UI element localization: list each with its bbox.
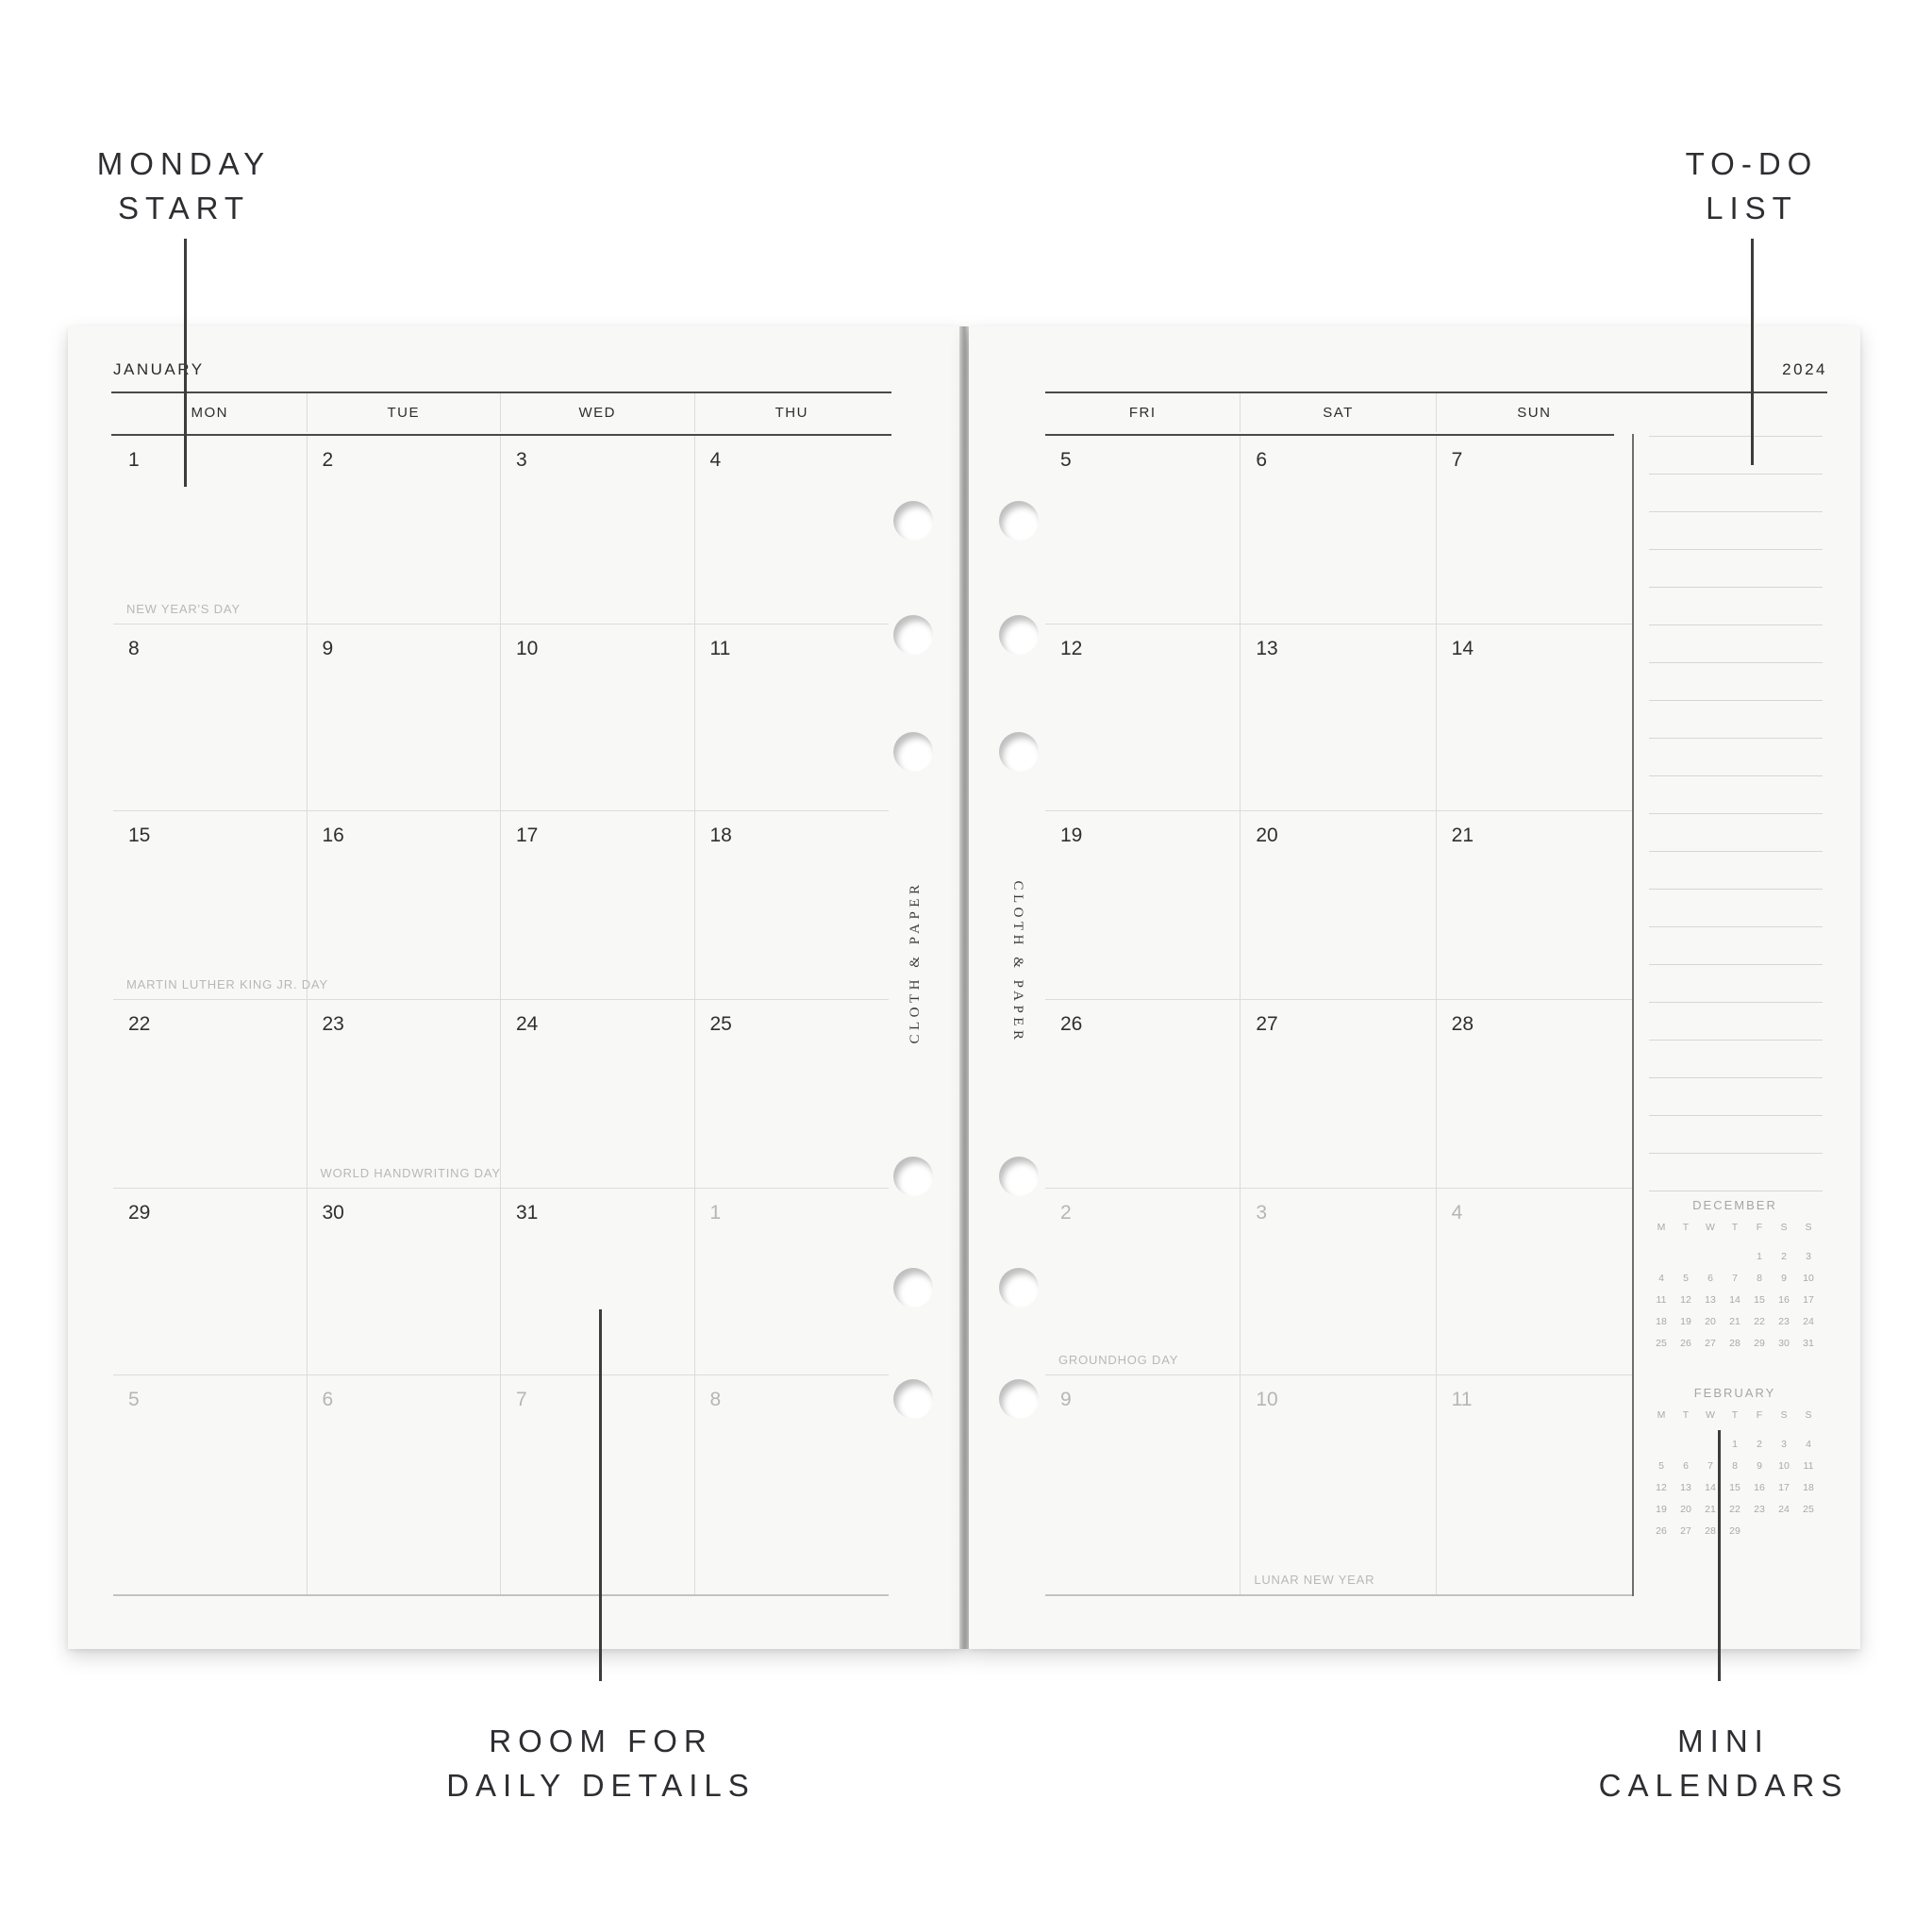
mini-calendar-date: 20 — [1698, 1311, 1723, 1333]
mini-calendar-date: 10 — [1796, 1268, 1821, 1290]
mini-calendar-date — [1772, 1521, 1796, 1542]
mini-calendar-date — [1649, 1434, 1674, 1456]
mini-calendar-date: 21 — [1723, 1311, 1747, 1333]
day-cell: 9 — [1045, 1375, 1241, 1594]
day-cell: 4 — [695, 436, 890, 625]
todo-ruled-line — [1649, 851, 1823, 852]
mini-calendar-date: 22 — [1747, 1311, 1772, 1333]
day-cell: 30 — [308, 1189, 502, 1375]
planner-product-image: MONDAY START TO-DO LIST ROOM FOR DAILY D… — [0, 0, 1932, 1932]
binder-hole — [893, 1157, 933, 1196]
day-cell: 22 — [113, 1000, 308, 1189]
month-grid-right: 5671213141920212627282GROUNDHOG DAY34910… — [1045, 436, 1632, 1594]
mini-calendar-date: 17 — [1772, 1477, 1796, 1499]
binder-hole — [999, 1157, 1039, 1196]
callout-todo-list-line1: TO-DO — [1610, 142, 1893, 186]
date-number: 2 — [323, 449, 334, 472]
date-number: 16 — [323, 824, 344, 847]
date-number: 11 — [1452, 1389, 1473, 1411]
day-cell: 31 — [501, 1189, 695, 1375]
mini-calendar-date: 15 — [1723, 1477, 1747, 1499]
day-cell: 2GROUNDHOG DAY — [1045, 1189, 1241, 1375]
grid-bottom-rule-right — [1045, 1594, 1632, 1596]
binder-hole — [893, 732, 933, 772]
mini-calendar-date: 12 — [1674, 1290, 1698, 1311]
date-number: 7 — [1452, 449, 1463, 472]
date-number: 27 — [1256, 1013, 1277, 1036]
mini-calendar-date: 1 — [1747, 1246, 1772, 1268]
mini-calendar-date — [1796, 1521, 1821, 1542]
mini-calendar-date: 13 — [1698, 1290, 1723, 1311]
date-number: 20 — [1256, 824, 1277, 847]
date-number: 3 — [1256, 1202, 1267, 1224]
mini-calendar-date: 13 — [1674, 1477, 1698, 1499]
todo-column-divider — [1632, 434, 1634, 1596]
todo-ruled-line — [1649, 775, 1823, 776]
mini-calendar-title: DECEMBER — [1649, 1194, 1821, 1217]
day-cell: 10 — [501, 625, 695, 811]
binder-hole — [999, 1379, 1039, 1419]
mini-calendar-date: 22 — [1723, 1499, 1747, 1521]
date-number: 4 — [710, 449, 722, 472]
grid-bottom-rule-left — [113, 1594, 889, 1596]
mini-calendar-day-letter: S — [1796, 1217, 1821, 1238]
date-number: 6 — [1256, 449, 1267, 472]
mini-calendar-date: 4 — [1796, 1434, 1821, 1456]
callout-pointer-mini-calendars — [1718, 1430, 1721, 1681]
todo-ruled-line — [1649, 700, 1823, 701]
date-number: 15 — [128, 824, 150, 847]
mini-calendar-day-letter: T — [1674, 1405, 1698, 1425]
day-cell: 29 — [113, 1189, 308, 1375]
mini-calendar-day-letter: M — [1649, 1405, 1674, 1425]
callout-mini-calendars: MINI CALENDARS — [1582, 1719, 1865, 1807]
date-number: 3 — [516, 449, 527, 472]
date-number: 6 — [323, 1389, 334, 1411]
day-cell: 11 — [695, 625, 890, 811]
day-cell: 25 — [695, 1000, 890, 1189]
mini-calendar-date: 16 — [1747, 1477, 1772, 1499]
mini-calendar-date: 30 — [1772, 1333, 1796, 1355]
mini-calendar-date: 5 — [1649, 1456, 1674, 1477]
day-cell: 26 — [1045, 1000, 1241, 1189]
mini-calendar-date: 18 — [1796, 1477, 1821, 1499]
callout-pointer-todo-list — [1751, 239, 1754, 465]
mini-calendar-date: 27 — [1674, 1521, 1698, 1542]
mini-calendar-date: 27 — [1698, 1333, 1723, 1355]
todo-ruled-line — [1649, 436, 1823, 437]
mini-calendar-date — [1649, 1246, 1674, 1268]
mini-calendar-date: 3 — [1796, 1246, 1821, 1268]
day-cell: 21 — [1437, 811, 1632, 1000]
date-number: 10 — [1256, 1389, 1277, 1411]
mini-calendar-date: 9 — [1772, 1268, 1796, 1290]
day-cell: 23WORLD HANDWRITING DAY — [308, 1000, 502, 1189]
month-grid-left: 1NEW YEAR'S DAY23489101115MARTIN LUTHER … — [113, 436, 889, 1594]
day-cell: 1 — [695, 1189, 890, 1375]
day-cell: 7 — [501, 1375, 695, 1594]
mini-calendar-date: 14 — [1723, 1290, 1747, 1311]
date-number: 13 — [1256, 638, 1277, 660]
binder-hole — [893, 1379, 933, 1419]
callout-mini-line1: MINI — [1582, 1719, 1865, 1763]
callout-todo-list-line2: LIST — [1610, 186, 1893, 230]
mini-calendar-date: 6 — [1674, 1456, 1698, 1477]
day-cell: 3 — [501, 436, 695, 625]
callout-room-for-daily-details: ROOM FOR DAILY DETAILS — [412, 1719, 790, 1807]
mini-calendar-date: 23 — [1747, 1499, 1772, 1521]
mini-calendar-day-letter: F — [1747, 1405, 1772, 1425]
callout-room-line1: ROOM FOR — [412, 1719, 790, 1763]
day-cell: 28 — [1437, 1000, 1632, 1189]
date-number: 5 — [128, 1389, 140, 1411]
mini-calendar-date: 16 — [1772, 1290, 1796, 1311]
todo-ruled-line — [1649, 1077, 1823, 1078]
day-cell: 2 — [308, 436, 502, 625]
date-number: 10 — [516, 638, 538, 660]
day-cell: 10LUNAR NEW YEAR — [1241, 1375, 1436, 1594]
day-cell: 5 — [113, 1375, 308, 1594]
mini-calendar-date: 15 — [1747, 1290, 1772, 1311]
todo-ruled-line — [1649, 474, 1823, 475]
mini-calendar-date: 20 — [1674, 1499, 1698, 1521]
page-binding-gap — [959, 326, 969, 1649]
date-number: 24 — [516, 1013, 538, 1036]
binder-hole — [893, 615, 933, 655]
date-number: 26 — [1060, 1013, 1082, 1036]
mini-calendar-date: 25 — [1649, 1333, 1674, 1355]
holiday-label: WORLD HANDWRITING DAY — [321, 1166, 501, 1180]
date-number: 25 — [710, 1013, 732, 1036]
mini-calendar-date — [1747, 1521, 1772, 1542]
mini-calendar-date: 28 — [1723, 1333, 1747, 1355]
mini-calendar-day-letter: S — [1772, 1217, 1796, 1238]
day-cell: 1NEW YEAR'S DAY — [113, 436, 308, 625]
todo-ruled-line — [1649, 926, 1823, 927]
day-cell: 7 — [1437, 436, 1632, 625]
mini-calendar-february: FEBRUARYMTWTFSS1234567891011121314151617… — [1649, 1382, 1821, 1542]
binder-hole — [893, 501, 933, 541]
mini-calendar-date: 23 — [1772, 1311, 1796, 1333]
mini-calendar-date: 12 — [1649, 1477, 1674, 1499]
date-number: 30 — [323, 1202, 344, 1224]
day-cell: 3 — [1241, 1189, 1436, 1375]
day-cell: 20 — [1241, 811, 1436, 1000]
mini-calendar-grid: MTWTFSS123456789101112131415161718192021… — [1649, 1217, 1821, 1355]
date-number: 4 — [1452, 1202, 1463, 1224]
mini-calendar-day-letter: W — [1698, 1405, 1723, 1425]
mini-calendar-day-letter: T — [1723, 1217, 1747, 1238]
binder-hole — [999, 1268, 1039, 1307]
todo-ruled-line — [1649, 1191, 1823, 1191]
date-number: 5 — [1060, 449, 1072, 472]
callout-monday-start-line1: MONDAY — [42, 142, 325, 186]
mini-calendar-date: 7 — [1723, 1268, 1747, 1290]
date-number: 28 — [1452, 1013, 1474, 1036]
mini-calendar-date: 8 — [1747, 1268, 1772, 1290]
date-number: 21 — [1452, 824, 1474, 847]
todo-ruled-line — [1649, 1040, 1823, 1041]
mini-calendar-date: 6 — [1698, 1268, 1723, 1290]
callout-room-line2: DAILY DETAILS — [412, 1763, 790, 1807]
callout-monday-start-line2: START — [42, 186, 325, 230]
todo-ruled-line — [1649, 587, 1823, 588]
mini-calendar-date: 19 — [1674, 1311, 1698, 1333]
mini-calendar-date: 1 — [1723, 1434, 1747, 1456]
todo-ruled-line — [1649, 549, 1823, 550]
day-cell: 19 — [1045, 811, 1241, 1000]
todo-ruled-line — [1649, 889, 1823, 890]
mini-calendar-date: 3 — [1772, 1434, 1796, 1456]
weekday-header-wed: WED — [501, 393, 695, 432]
todo-ruled-line — [1649, 813, 1823, 814]
mini-calendar-day-letter: S — [1796, 1405, 1821, 1425]
date-number: 8 — [710, 1389, 722, 1411]
todo-ruled-line — [1649, 1153, 1823, 1154]
weekday-header-row-right: FRI SAT SUN — [1045, 393, 1632, 432]
mini-calendar-day-letter: T — [1674, 1217, 1698, 1238]
year-title: 2024 — [1782, 360, 1827, 379]
date-number: 12 — [1060, 638, 1082, 660]
right-page: 2024 FRI SAT SUN 5671213141920212627282G… — [969, 326, 1860, 1649]
date-number: 8 — [128, 638, 140, 660]
mini-calendar-day-letter: T — [1723, 1405, 1747, 1425]
mini-calendar-date: 9 — [1747, 1456, 1772, 1477]
mini-calendar-date: 24 — [1772, 1499, 1796, 1521]
holiday-label: MARTIN LUTHER KING JR. DAY — [126, 977, 328, 991]
mini-calendar-date: 2 — [1747, 1434, 1772, 1456]
todo-ruled-line — [1649, 1002, 1823, 1003]
weekday-header-sun: SUN — [1437, 393, 1632, 432]
mini-calendar-date: 29 — [1747, 1333, 1772, 1355]
date-number: 1 — [710, 1202, 722, 1224]
weekday-header-mon: MON — [113, 393, 308, 432]
callout-monday-start: MONDAY START — [42, 142, 325, 230]
mini-calendar-day-letter: W — [1698, 1217, 1723, 1238]
date-number: 14 — [1452, 638, 1474, 660]
mini-calendar-date: 8 — [1723, 1456, 1747, 1477]
holiday-label: GROUNDHOG DAY — [1058, 1353, 1178, 1367]
binder-hole — [999, 501, 1039, 541]
mini-calendar-date: 26 — [1649, 1521, 1674, 1542]
mini-calendar-date: 31 — [1796, 1333, 1821, 1355]
mini-calendar-date: 5 — [1674, 1268, 1698, 1290]
mini-calendar-date — [1674, 1246, 1698, 1268]
day-cell: 17 — [501, 811, 695, 1000]
date-number: 2 — [1060, 1202, 1072, 1224]
weekday-header-row-left: MON TUE WED THU — [113, 393, 889, 432]
day-cell: 12 — [1045, 625, 1241, 811]
todo-ruled-line — [1649, 964, 1823, 965]
date-number: 9 — [1060, 1389, 1072, 1411]
date-number: 29 — [128, 1202, 150, 1224]
day-cell: 6 — [1241, 436, 1436, 625]
todo-ruled-line — [1649, 738, 1823, 739]
mini-calendar-december: DECEMBERMTWTFSS1234567891011121314151617… — [1649, 1194, 1821, 1355]
weekday-header-sat: SAT — [1241, 393, 1436, 432]
month-title: JANUARY — [113, 360, 205, 379]
mini-calendar-date: 10 — [1772, 1456, 1796, 1477]
date-number: 11 — [710, 638, 731, 660]
date-number: 7 — [516, 1389, 527, 1411]
binder-hole — [999, 732, 1039, 772]
binder-hole — [999, 615, 1039, 655]
mini-calendar-title: FEBRUARY — [1649, 1382, 1821, 1405]
day-cell: 5 — [1045, 436, 1241, 625]
day-cell: 14 — [1437, 625, 1632, 811]
day-cell: 8 — [113, 625, 308, 811]
day-cell: 18 — [695, 811, 890, 1000]
callout-todo-list: TO-DO LIST — [1610, 142, 1893, 230]
date-number: 18 — [710, 824, 732, 847]
date-number: 19 — [1060, 824, 1082, 847]
day-cell: 4 — [1437, 1189, 1632, 1375]
mini-calendar-date: 29 — [1723, 1521, 1747, 1542]
mini-calendar-day-letter: S — [1772, 1405, 1796, 1425]
date-number: 22 — [128, 1013, 150, 1036]
weekday-header-fri: FRI — [1045, 393, 1241, 432]
todo-ruled-line — [1649, 1115, 1823, 1116]
brand-wordmark-right: CLOTH & PAPER — [1005, 858, 1025, 1066]
day-cell: 16 — [308, 811, 502, 1000]
day-cell: 11 — [1437, 1375, 1632, 1594]
brand-wordmark-left: CLOTH & PAPER — [908, 858, 928, 1066]
binder-hole — [893, 1268, 933, 1307]
weekday-header-tue: TUE — [308, 393, 502, 432]
mini-calendar-date — [1723, 1246, 1747, 1268]
day-cell: 24 — [501, 1000, 695, 1189]
day-cell: 13 — [1241, 625, 1436, 811]
mini-calendar-date: 11 — [1796, 1456, 1821, 1477]
date-number: 9 — [323, 638, 334, 660]
mini-calendar-date — [1698, 1246, 1723, 1268]
date-number: 31 — [516, 1202, 538, 1224]
day-cell: 9 — [308, 625, 502, 811]
mini-calendar-date: 11 — [1649, 1290, 1674, 1311]
holiday-label: LUNAR NEW YEAR — [1254, 1573, 1374, 1587]
day-cell: 8 — [695, 1375, 890, 1594]
todo-ruled-line — [1649, 511, 1823, 512]
mini-calendar-grid: MTWTFSS123456789101112131415161718192021… — [1649, 1405, 1821, 1542]
date-number: 1 — [128, 449, 140, 472]
date-number: 17 — [516, 824, 538, 847]
date-number: 23 — [323, 1013, 344, 1036]
todo-ruled-line — [1649, 625, 1823, 625]
mini-calendar-date: 2 — [1772, 1246, 1796, 1268]
mini-calendar-day-letter: M — [1649, 1217, 1674, 1238]
mini-calendar-date: 24 — [1796, 1311, 1821, 1333]
callout-pointer-monday-start — [184, 239, 187, 487]
day-cell: 27 — [1241, 1000, 1436, 1189]
day-cell: 15MARTIN LUTHER KING JR. DAY — [113, 811, 308, 1000]
callout-pointer-room-details — [599, 1309, 602, 1681]
mini-calendar-date: 25 — [1796, 1499, 1821, 1521]
mini-calendar-date: 18 — [1649, 1311, 1674, 1333]
day-cell: 6 — [308, 1375, 502, 1594]
mini-calendar-day-letter: F — [1747, 1217, 1772, 1238]
callout-mini-line2: CALENDARS — [1582, 1763, 1865, 1807]
mini-calendar-date — [1674, 1434, 1698, 1456]
left-page: JANUARY MON TUE WED THU 1NEW YEAR'S DAY2… — [68, 326, 965, 1649]
mini-calendar-date: 4 — [1649, 1268, 1674, 1290]
mini-calendar-date: 26 — [1674, 1333, 1698, 1355]
weekday-header-thu: THU — [695, 393, 890, 432]
holiday-label: NEW YEAR'S DAY — [126, 602, 241, 616]
todo-ruled-line — [1649, 662, 1823, 663]
mini-calendar-date: 19 — [1649, 1499, 1674, 1521]
mini-calendar-date: 17 — [1796, 1290, 1821, 1311]
